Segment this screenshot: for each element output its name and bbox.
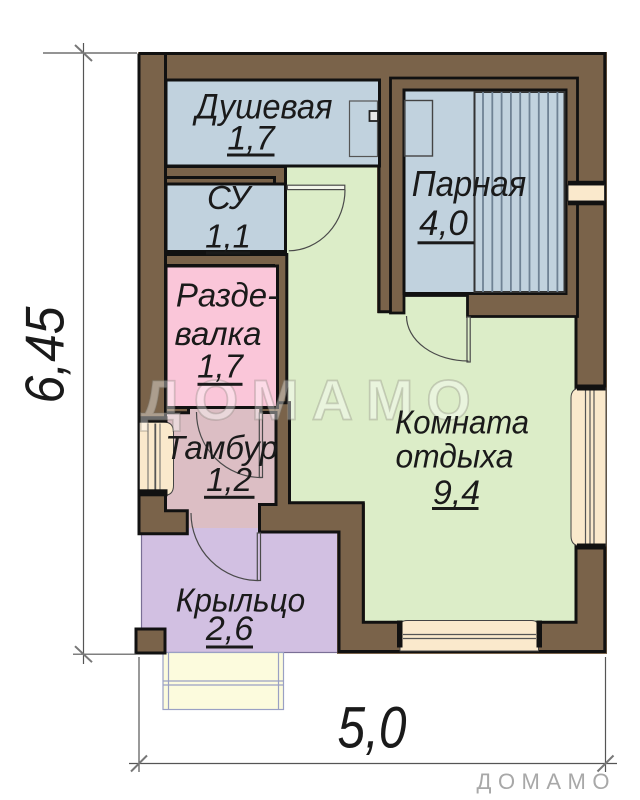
svg-text:Парная: Парная (412, 163, 527, 204)
svg-text:5,0: 5,0 (338, 696, 407, 761)
svg-text:1,7: 1,7 (197, 348, 245, 385)
svg-text:Комната: Комната (395, 404, 529, 441)
svg-text:1,7: 1,7 (227, 120, 275, 158)
svg-text:СУ: СУ (207, 179, 253, 216)
svg-text:2,6: 2,6 (205, 610, 253, 648)
svg-text:1,1: 1,1 (205, 218, 251, 255)
svg-text:валка: валка (174, 315, 261, 352)
svg-text:отдыха: отдыха (396, 437, 514, 474)
svg-text:1,2: 1,2 (206, 461, 252, 498)
svg-text:Разде-: Разде- (176, 276, 278, 313)
svg-text:9,4: 9,4 (433, 474, 480, 512)
svg-text:4,0: 4,0 (419, 204, 468, 243)
svg-text:6,45: 6,45 (14, 306, 76, 403)
svg-text:ДОМАМО: ДОМАМО (477, 769, 616, 794)
